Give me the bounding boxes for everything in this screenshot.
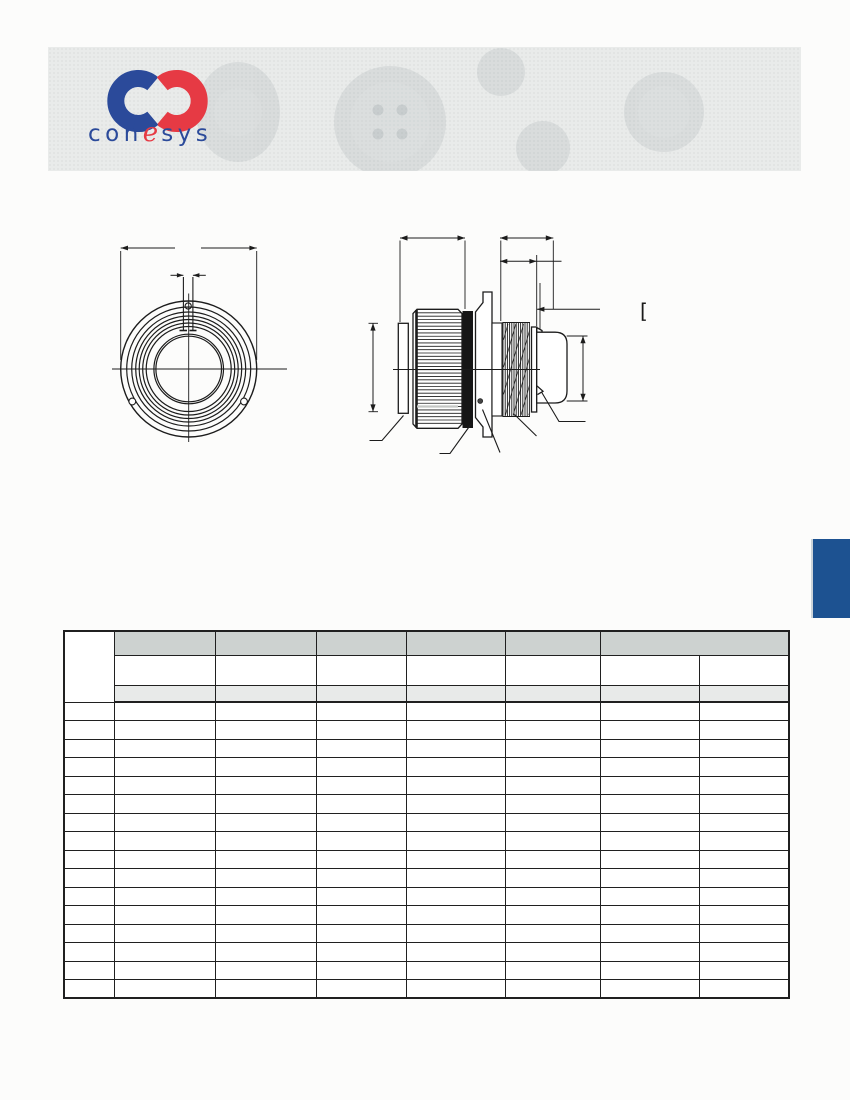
table-cell [406, 961, 505, 980]
table-cell [114, 906, 215, 925]
face-circle [136, 316, 242, 422]
table-cell [64, 924, 114, 943]
dim-arrow [537, 307, 544, 312]
header-cell [600, 631, 789, 655]
table-row [64, 776, 789, 795]
table-cell [505, 850, 600, 869]
table-cell [64, 795, 114, 814]
pattern-line [504, 324, 524, 394]
dim-arrow [400, 235, 408, 240]
table-cell [600, 776, 699, 795]
table-cell [406, 832, 505, 851]
table-cell [215, 832, 316, 851]
table-cell [64, 721, 114, 740]
header-cell [114, 631, 215, 655]
table-cell [600, 906, 699, 925]
leader-polarizing-key [542, 392, 586, 422]
table-cell [215, 702, 316, 721]
header-subcell [406, 655, 505, 685]
logo-text-e: e [143, 118, 161, 148]
table-cell [505, 721, 600, 740]
dim-arrow [500, 235, 508, 240]
table-cell [215, 813, 316, 832]
table-cell [406, 702, 505, 721]
table-row [64, 924, 789, 943]
table-cell [316, 721, 406, 740]
table-row [64, 869, 789, 888]
shell-key-tab [537, 328, 542, 333]
table-cell [316, 850, 406, 869]
table-cell [215, 739, 316, 758]
table-cell [600, 739, 699, 758]
leader-back-shell [370, 416, 404, 441]
table-cell [406, 721, 505, 740]
face-circle [156, 336, 222, 402]
table-cell [505, 980, 600, 999]
table-cell [699, 906, 789, 925]
table-cell [505, 795, 600, 814]
dim-arrow [546, 235, 554, 240]
table-row [64, 758, 789, 777]
logo-wordmark: conesys [88, 118, 212, 148]
table-cell [114, 943, 215, 962]
table-cell [215, 980, 316, 999]
table-cell [316, 832, 406, 851]
thread-lines [503, 323, 530, 416]
pattern-line [504, 324, 516, 367]
table-cell [505, 813, 600, 832]
mounting-flange [476, 292, 493, 437]
side-view-drawing [369, 235, 601, 453]
back-shell [398, 323, 408, 413]
header-subcell [600, 655, 699, 685]
table-cell [316, 702, 406, 721]
face-circle [132, 312, 246, 426]
thread-face [532, 327, 537, 412]
front-view-drawing [112, 246, 287, 442]
table-cell [600, 758, 699, 777]
table-cell [505, 758, 600, 777]
mounting-hole-left [129, 398, 136, 405]
table-cell [505, 739, 600, 758]
table-cell [406, 795, 505, 814]
dim-arrow [370, 323, 375, 330]
shank [492, 323, 502, 416]
header-subcell [505, 655, 600, 685]
table-cell [406, 906, 505, 925]
knurl-lines [417, 313, 462, 424]
table-row [64, 721, 789, 740]
leader-seal-band [440, 424, 472, 454]
table-cell [316, 776, 406, 795]
spec-table [63, 630, 790, 999]
table-cell [215, 943, 316, 962]
table-cell [316, 758, 406, 777]
header-subcell [215, 655, 316, 685]
dim-arrow [580, 336, 585, 343]
table-cell [316, 813, 406, 832]
connector-photo-silhouettes [196, 48, 704, 171]
table-cell [64, 943, 114, 962]
table-cell [215, 961, 316, 980]
page-edge-tab [811, 539, 850, 618]
table-cell [114, 887, 215, 906]
face-circle [154, 334, 224, 404]
table-cell [505, 961, 600, 980]
table-cell [699, 869, 789, 888]
dim-arrow [249, 246, 256, 251]
table-cell [114, 961, 215, 980]
table-cell [406, 850, 505, 869]
table-cell [215, 850, 316, 869]
leader-threads [515, 415, 537, 437]
pattern-line [505, 331, 529, 415]
header-subcell [215, 685, 316, 702]
table-cell [699, 980, 789, 999]
table-stub-cell [64, 631, 114, 702]
table-cell [64, 739, 114, 758]
table-cell [114, 795, 215, 814]
face-circle [127, 307, 251, 431]
table-cell [64, 887, 114, 906]
table-cell [600, 887, 699, 906]
table-row [64, 702, 789, 721]
table-cell [600, 961, 699, 980]
header-banner: conesys [48, 47, 801, 171]
coupling-nut [413, 309, 462, 428]
table-cell [699, 887, 789, 906]
table-cell [114, 758, 215, 777]
face-circle [146, 327, 231, 412]
table-cell [64, 758, 114, 777]
table-cell [505, 702, 600, 721]
table-cell [600, 795, 699, 814]
flange-screw [478, 399, 483, 404]
table-row [64, 739, 789, 758]
table-row [64, 906, 789, 925]
table-cell [406, 739, 505, 758]
table-cell [406, 924, 505, 943]
table-cell [600, 850, 699, 869]
dim-arrow [580, 394, 585, 401]
table-row [64, 795, 789, 814]
table-cell [215, 721, 316, 740]
table-cell [699, 758, 789, 777]
table-cell [699, 924, 789, 943]
table-cell [316, 961, 406, 980]
polarizing-key [537, 386, 543, 395]
table-cell [600, 924, 699, 943]
table-cell [600, 702, 699, 721]
connector-face-circles [121, 301, 257, 437]
table-cell [64, 702, 114, 721]
table-cell [505, 832, 600, 851]
table-cell [215, 924, 316, 943]
table-row [64, 887, 789, 906]
table-cell [699, 702, 789, 721]
dim-arrow [193, 273, 200, 277]
table-cell [505, 887, 600, 906]
header-subcell [114, 655, 215, 685]
table-row [64, 980, 789, 999]
front-shell [537, 332, 567, 403]
table-cell [699, 961, 789, 980]
table-cell [114, 980, 215, 999]
table-cell [316, 869, 406, 888]
header-cell [316, 631, 406, 655]
pattern-line [529, 413, 530, 415]
table-cell [114, 721, 215, 740]
table-cell [64, 980, 114, 999]
table-cell [215, 887, 316, 906]
table-cell [600, 869, 699, 888]
dim-arrow [458, 235, 466, 240]
pattern-line [504, 324, 509, 340]
table-cell [114, 739, 215, 758]
table-cell [699, 813, 789, 832]
table-cell [406, 980, 505, 999]
table-cell [316, 943, 406, 962]
table-cell [114, 850, 215, 869]
table-cell [215, 776, 316, 795]
pattern-line [521, 385, 530, 415]
table-row [64, 961, 789, 980]
table-cell [600, 943, 699, 962]
table-cell [505, 906, 600, 925]
header-cell [406, 631, 505, 655]
table-cell [600, 832, 699, 851]
table-cell [600, 813, 699, 832]
table-cell [114, 832, 215, 851]
table-cell [215, 869, 316, 888]
table-cell [406, 758, 505, 777]
table-cell [64, 869, 114, 888]
table-cell [406, 776, 505, 795]
dim-arrow [370, 404, 375, 411]
table-cell [316, 924, 406, 943]
table-cell [505, 776, 600, 795]
table-cell [316, 980, 406, 999]
table-cell [114, 869, 215, 888]
table-cell [64, 906, 114, 925]
table-cell [215, 758, 316, 777]
dim-arrow [177, 273, 184, 277]
table-cell [505, 924, 600, 943]
header-subcell [699, 655, 789, 685]
face-circle [143, 323, 235, 415]
table-cell [699, 943, 789, 962]
table-row [64, 850, 789, 869]
table-cell [699, 850, 789, 869]
dimension-note-bracket: [ [640, 299, 648, 323]
table-cell [699, 795, 789, 814]
dim-arrow [500, 259, 507, 264]
table-cell [114, 924, 215, 943]
logo-text-sys: sys [161, 121, 212, 147]
table-cell [406, 813, 505, 832]
seal-band [463, 311, 474, 428]
table-cell [64, 832, 114, 851]
table-cell [505, 869, 600, 888]
table-cell [316, 739, 406, 758]
header-subcell [316, 655, 406, 685]
table-cell [699, 721, 789, 740]
header-subcell [600, 685, 699, 702]
table-cell [699, 776, 789, 795]
table-cell [600, 721, 699, 740]
table-cell [406, 943, 505, 962]
table-cell [406, 869, 505, 888]
face-circle [121, 301, 257, 437]
table-row [64, 832, 789, 851]
table-cell [64, 961, 114, 980]
table-cell [505, 943, 600, 962]
table-cell [215, 795, 316, 814]
pattern-line [513, 358, 529, 415]
table-cell [316, 887, 406, 906]
leader-flange-screw [483, 410, 501, 453]
header-subcell [406, 685, 505, 702]
logo-text-con: con [88, 121, 143, 147]
face-circle [139, 320, 238, 419]
header-subcell [316, 685, 406, 702]
table-row [64, 943, 789, 962]
table-cell [215, 906, 316, 925]
table-cell [316, 906, 406, 925]
table-cell [64, 776, 114, 795]
table-cell [114, 813, 215, 832]
table-cell [64, 850, 114, 869]
dim-arrow [121, 246, 128, 251]
keyway-hole [185, 303, 191, 309]
header-subcell [699, 685, 789, 702]
table-cell [699, 832, 789, 851]
table-cell [600, 980, 699, 999]
dim-arrow [529, 259, 536, 264]
table-cell [406, 887, 505, 906]
mounting-hole-right [241, 398, 248, 405]
header-cell [505, 631, 600, 655]
table-row [64, 813, 789, 832]
table-cell [699, 739, 789, 758]
table-cell [316, 795, 406, 814]
connector-photo-highlights [214, 82, 690, 162]
header-cell [215, 631, 316, 655]
table-cell [114, 776, 215, 795]
header-subcell [505, 685, 600, 702]
logo-red-ring [162, 79, 199, 124]
table-cell [64, 813, 114, 832]
header-subcell [114, 685, 215, 702]
table-cell [114, 702, 215, 721]
